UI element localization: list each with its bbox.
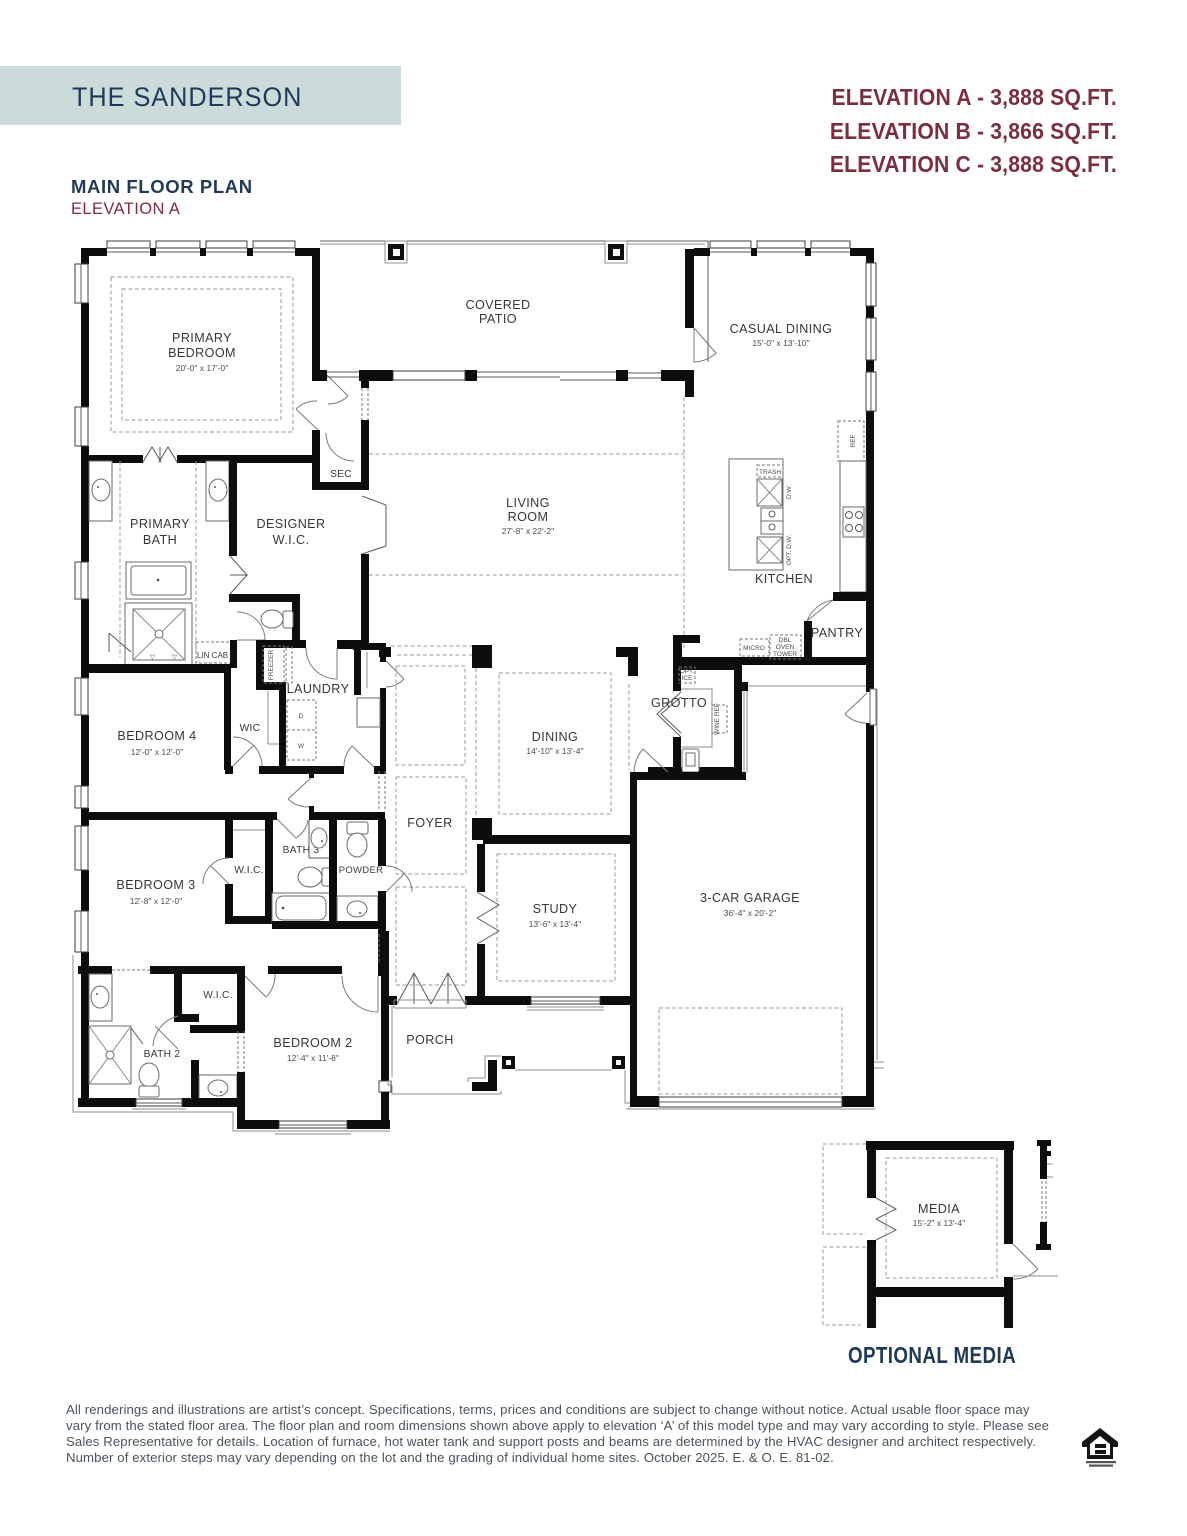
svg-text:ELEVATION C - 3,888 SQ.FT.: ELEVATION C - 3,888 SQ.FT. bbox=[830, 151, 1117, 177]
svg-text:ELEVATION A - 3,888 SQ.FT.: ELEVATION A - 3,888 SQ.FT. bbox=[831, 84, 1117, 110]
svg-text:ELEVATION A: ELEVATION A bbox=[71, 200, 180, 218]
svg-text:BEDROOM 3: BEDROOM 3 bbox=[116, 878, 195, 892]
svg-text:BEDROOM: BEDROOM bbox=[168, 346, 236, 360]
svg-text:WINE REF: WINE REF bbox=[714, 703, 721, 735]
svg-text:REF: REF bbox=[850, 434, 857, 447]
svg-text:12'-4" x 11'-8": 12'-4" x 11'-8" bbox=[287, 1053, 339, 1063]
svg-text:vary from the stated floor are: vary from the stated floor area. The flo… bbox=[66, 1418, 1049, 1433]
svg-text:W.I.C.: W.I.C. bbox=[203, 990, 233, 1001]
svg-text:All renderings and illustratio: All renderings and illustrations are art… bbox=[66, 1402, 1030, 1417]
svg-text:ROOM: ROOM bbox=[508, 510, 549, 524]
svg-text:OPT. D.W.: OPT. D.W. bbox=[786, 535, 793, 566]
svg-text:D: D bbox=[299, 713, 304, 720]
svg-text:DINING: DINING bbox=[532, 730, 578, 744]
svg-text:BATH 2: BATH 2 bbox=[144, 1049, 181, 1060]
svg-text:MAIN FLOOR PLAN: MAIN FLOOR PLAN bbox=[71, 176, 253, 197]
svg-text:Number of exterior steps may v: Number of exterior steps may vary depend… bbox=[66, 1450, 834, 1465]
svg-text:STUDY: STUDY bbox=[533, 902, 578, 916]
svg-text:PATIO: PATIO bbox=[479, 312, 517, 326]
svg-text:Sales Representative for detai: Sales Representative for details. Locati… bbox=[66, 1434, 1036, 1449]
svg-text:KITCHEN: KITCHEN bbox=[755, 572, 813, 586]
svg-text:POWDER: POWDER bbox=[339, 865, 384, 876]
svg-text:DBL: DBL bbox=[779, 637, 792, 644]
svg-text:COVERED: COVERED bbox=[465, 298, 530, 312]
svg-text:20'-0" x 17'-0": 20'-0" x 17'-0" bbox=[176, 363, 229, 373]
svg-text:12'-8" x 12'-0": 12'-8" x 12'-0" bbox=[130, 896, 183, 906]
svg-text:LAUNDRY: LAUNDRY bbox=[287, 682, 350, 696]
svg-text:ICE: ICE bbox=[682, 675, 694, 682]
svg-text:14'-10" x 13'-4": 14'-10" x 13'-4" bbox=[526, 746, 583, 756]
svg-text:ELEVATION B - 3,866 SQ.FT.: ELEVATION B - 3,866 SQ.FT. bbox=[830, 118, 1117, 144]
svg-text:OVEN: OVEN bbox=[776, 644, 795, 651]
svg-text:3-CAR GARAGE: 3-CAR GARAGE bbox=[700, 891, 800, 905]
svg-text:BATH 3: BATH 3 bbox=[283, 845, 320, 856]
svg-text:BEDROOM 4: BEDROOM 4 bbox=[117, 729, 196, 743]
svg-text:W.I.C.: W.I.C. bbox=[273, 533, 310, 547]
svg-text:TRASH: TRASH bbox=[759, 469, 781, 476]
svg-text:27'-8" x 22'-2": 27'-8" x 22'-2" bbox=[502, 526, 555, 536]
svg-text:LIVING: LIVING bbox=[506, 496, 550, 510]
svg-text:W.I.C.: W.I.C. bbox=[234, 865, 264, 876]
svg-text:15'-0" x 13'-10": 15'-0" x 13'-10" bbox=[752, 338, 809, 348]
svg-text:12'-0" x 12'-0": 12'-0" x 12'-0" bbox=[131, 747, 184, 757]
svg-text:BEDROOM 2: BEDROOM 2 bbox=[273, 1036, 352, 1050]
svg-text:D.W.: D.W. bbox=[786, 485, 793, 499]
svg-text:W: W bbox=[298, 743, 305, 750]
svg-text:TOWER: TOWER bbox=[773, 651, 797, 658]
svg-text:SEC: SEC bbox=[330, 469, 352, 480]
svg-text:MEDIA: MEDIA bbox=[918, 1202, 960, 1216]
svg-text:PRIMARY: PRIMARY bbox=[172, 331, 232, 345]
svg-text:OPTIONAL MEDIA: OPTIONAL MEDIA bbox=[848, 1342, 1016, 1369]
svg-text:DESIGNER: DESIGNER bbox=[257, 517, 326, 531]
svg-text:15'-2" x 13'-4": 15'-2" x 13'-4" bbox=[913, 1218, 966, 1228]
svg-text:THE SANDERSON: THE SANDERSON bbox=[72, 83, 302, 112]
svg-text:GROTTO: GROTTO bbox=[651, 696, 707, 710]
svg-text:13'-6" x 13'-4": 13'-6" x 13'-4" bbox=[529, 919, 582, 929]
svg-text:FREEZER: FREEZER bbox=[268, 650, 275, 681]
svg-text:FOYER: FOYER bbox=[407, 816, 452, 830]
svg-text:PORCH: PORCH bbox=[406, 1033, 453, 1047]
svg-text:LIN CAB: LIN CAB bbox=[197, 651, 228, 660]
svg-text:MICRO: MICRO bbox=[743, 645, 765, 652]
svg-text:BATH: BATH bbox=[143, 533, 177, 547]
svg-text:OPT.: OPT. bbox=[680, 668, 695, 675]
svg-text:CASUAL DINING: CASUAL DINING bbox=[730, 322, 833, 336]
svg-text:36'-4" x 20'-2": 36'-4" x 20'-2" bbox=[724, 908, 777, 918]
svg-text:PANTRY: PANTRY bbox=[811, 626, 864, 640]
svg-text:PRIMARY: PRIMARY bbox=[130, 517, 190, 531]
svg-text:WIC: WIC bbox=[240, 723, 261, 734]
